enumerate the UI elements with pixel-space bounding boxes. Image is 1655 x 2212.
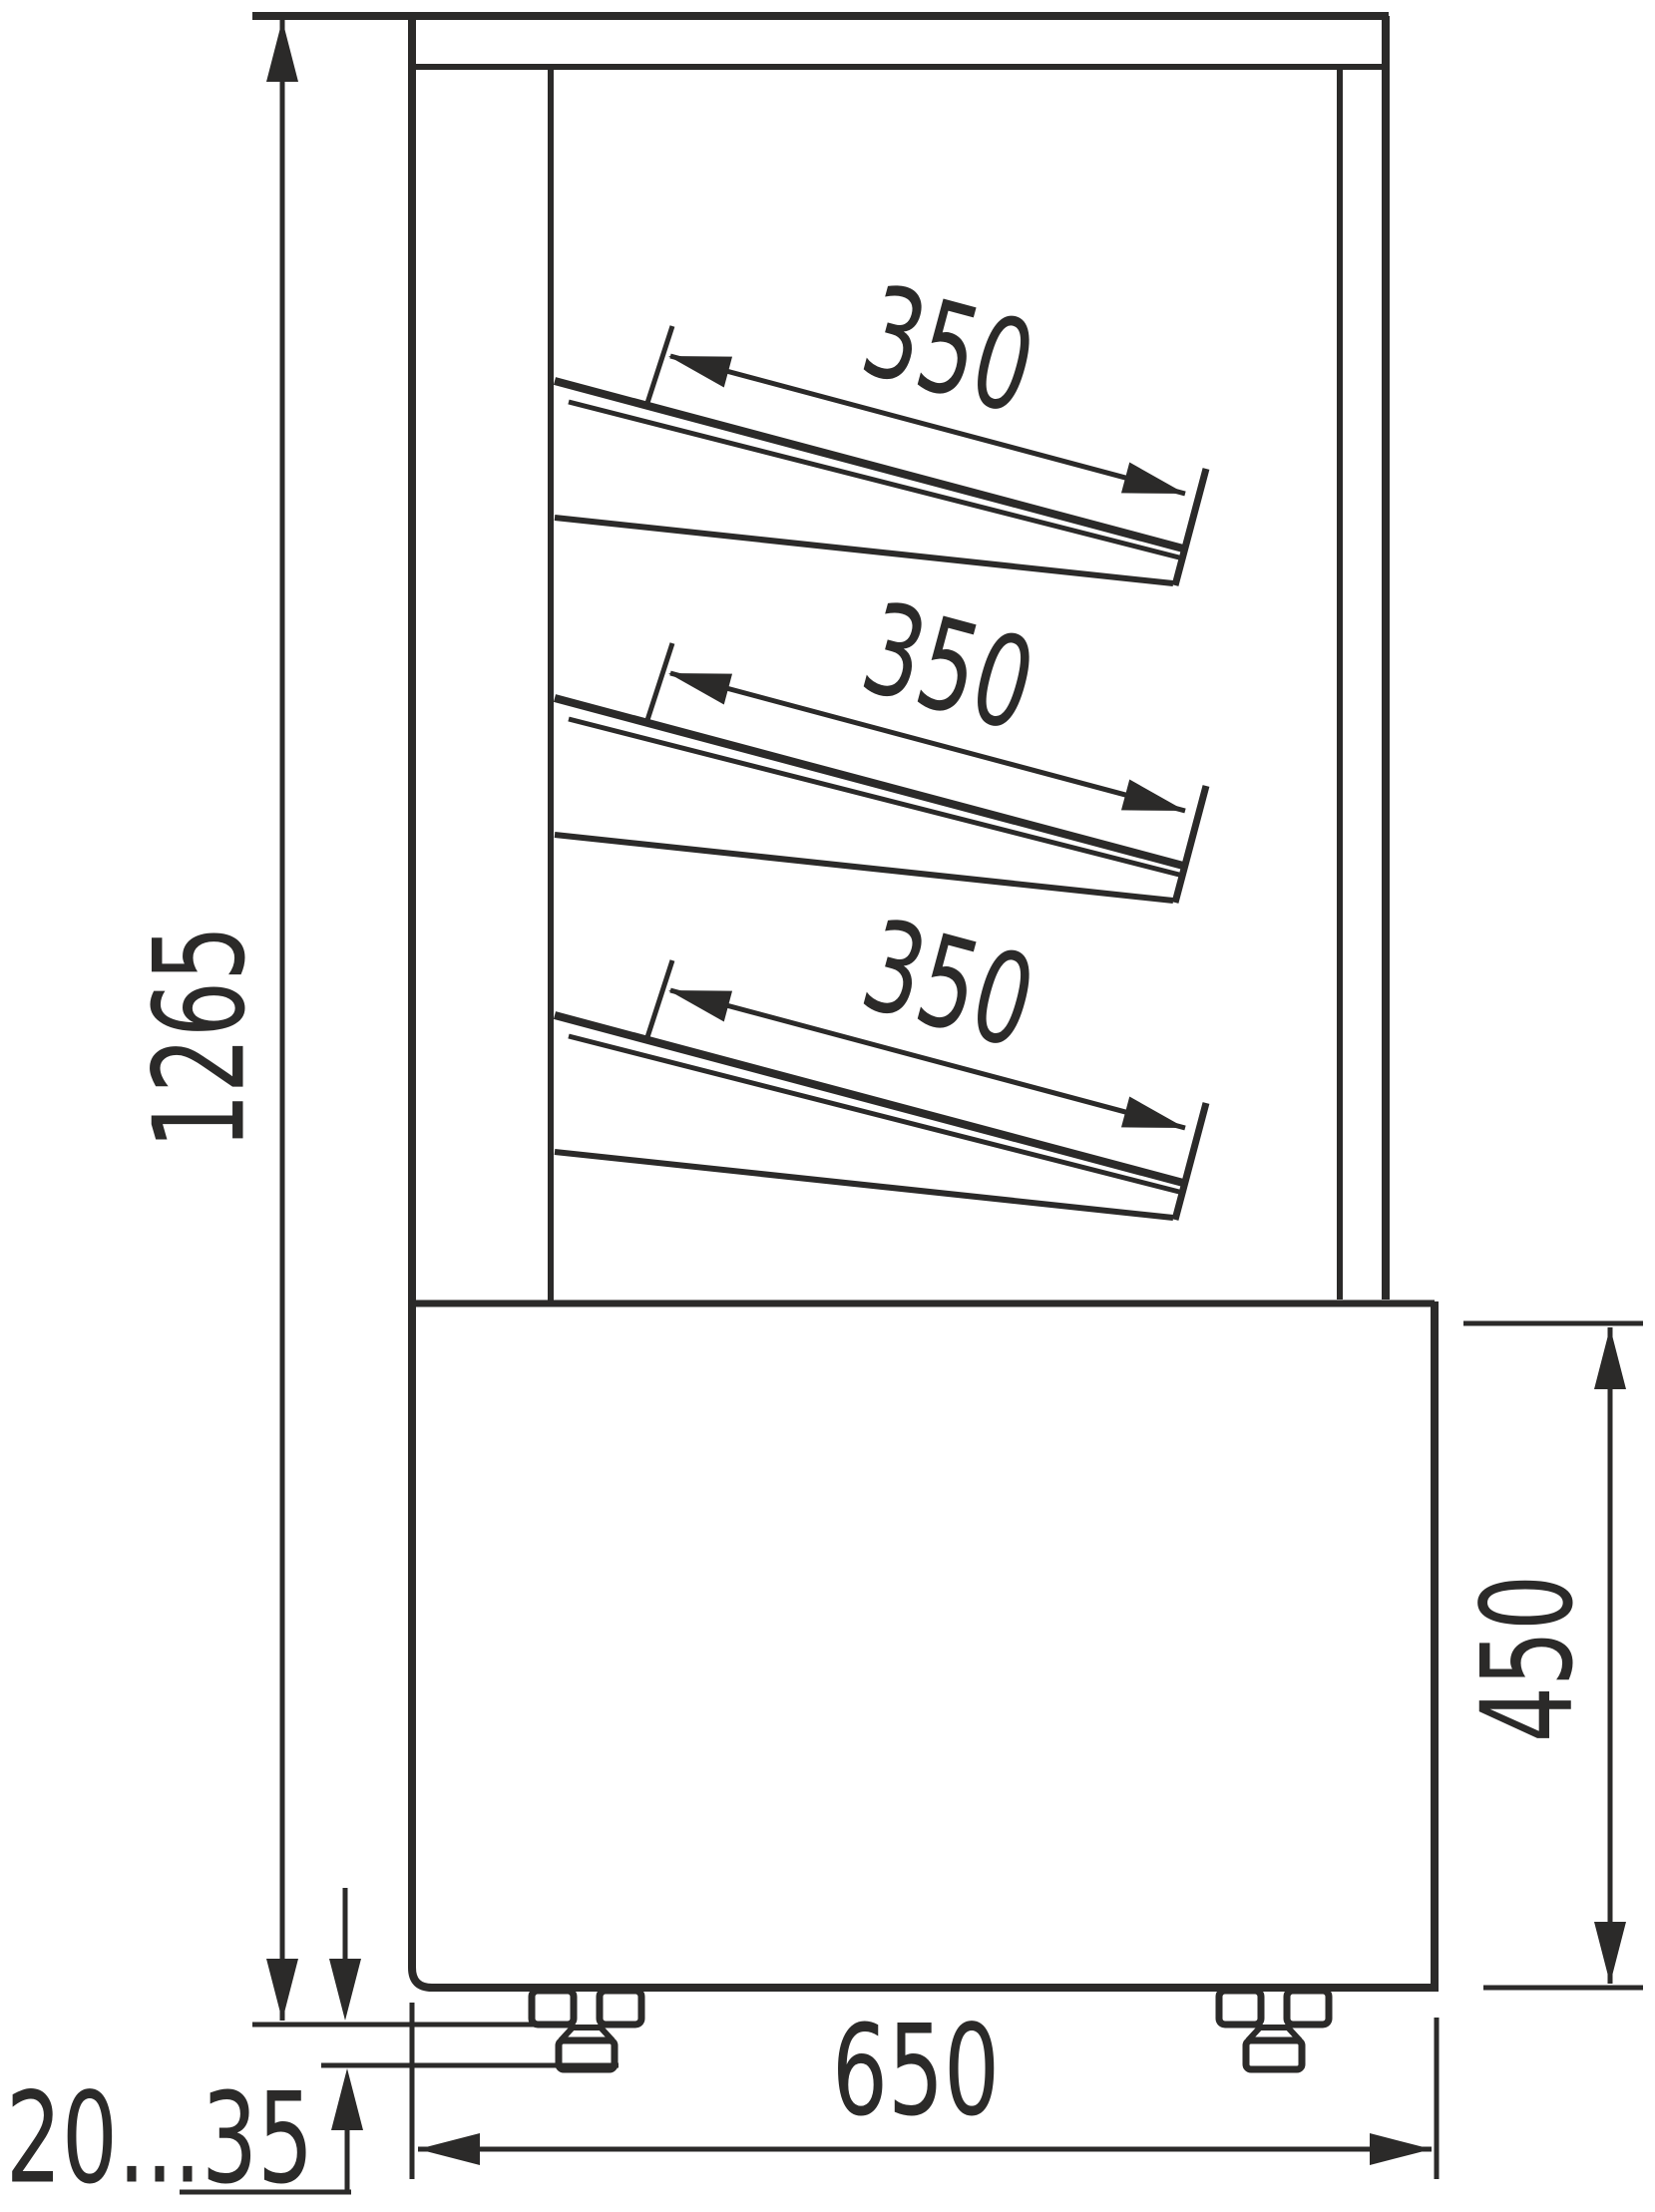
shelf-3-bottom-line	[555, 1152, 1173, 1218]
base-height-label: 450	[1453, 1575, 1600, 1742]
shelf-3-dim-arrow-left	[664, 975, 732, 1022]
shelf-1-front-lip	[1175, 469, 1206, 585]
shelf-3-top-line	[555, 1015, 1183, 1183]
shelf-3-under-line	[569, 1036, 1179, 1192]
shelf-2-bottom-line	[555, 835, 1173, 901]
shelf-1-under-line	[569, 402, 1179, 557]
shelf-3: 350	[555, 892, 1206, 1220]
base-depth-arrow-right	[1370, 2133, 1432, 2165]
shelf-2-dim-arrow-left	[664, 658, 732, 705]
shelf-1-dim-arrow-left	[664, 341, 732, 388]
foot-left-flange-b	[600, 1991, 641, 2025]
base-depth-label: 650	[832, 1997, 1000, 2143]
cabinet-outline	[252, 12, 1435, 1988]
shelf-2-dim-tick-left	[647, 643, 672, 720]
shelf-3-dim-tick-left	[647, 960, 672, 1037]
shelf-2-depth-label: 350	[849, 574, 1049, 760]
shelf-3-dim-arrow-right	[1121, 1096, 1189, 1143]
foot-left-flange-a	[532, 1991, 574, 2025]
foot-range-arrow-down	[329, 1959, 361, 2021]
shelf-1: 350	[555, 257, 1206, 585]
shelf-1-depth-label: 350	[849, 257, 1049, 443]
shelf-3-front-lip	[1175, 1103, 1206, 1220]
dimension-overall-height: 1265	[126, 20, 535, 2025]
base-depth-arrow-left	[418, 2133, 480, 2165]
shelf-3-depth-label: 350	[849, 892, 1049, 1077]
shelf-2: 350	[555, 574, 1206, 903]
foot-right	[1219, 1991, 1329, 2069]
height-dim-arrow-bottom	[266, 1959, 298, 2021]
shelf-2-under-line	[569, 719, 1179, 875]
shelf-1-top-line	[555, 381, 1183, 549]
drawing-sheet: 350 350 350	[0, 0, 1655, 2212]
height-dim-arrow-top	[266, 20, 298, 82]
foot-right-base	[1246, 2040, 1302, 2069]
dimension-base-height: 450	[1453, 1323, 1643, 1988]
base-height-arrow-bottom	[1594, 1922, 1626, 1984]
dimension-foot-range: 20...35	[6, 1888, 619, 2212]
dimension-drawing-svg: 350 350 350	[0, 0, 1655, 2212]
base-height-arrow-top	[1594, 1327, 1626, 1389]
foot-right-flange-a	[1219, 1991, 1261, 2025]
shelf-1-bottom-line	[555, 518, 1173, 583]
foot-left	[532, 1991, 641, 2069]
shelf-1-dim-tick-left	[647, 326, 672, 403]
height-dim-label: 1265	[126, 925, 272, 1149]
shelf-2-top-line	[555, 698, 1183, 866]
foot-right-flange-b	[1287, 1991, 1329, 2025]
foot-range-label: 20...35	[6, 2064, 314, 2211]
shelf-2-dim-arrow-right	[1121, 779, 1189, 826]
shelf-2-front-lip	[1175, 786, 1206, 903]
shelf-1-dim-arrow-right	[1121, 462, 1189, 509]
